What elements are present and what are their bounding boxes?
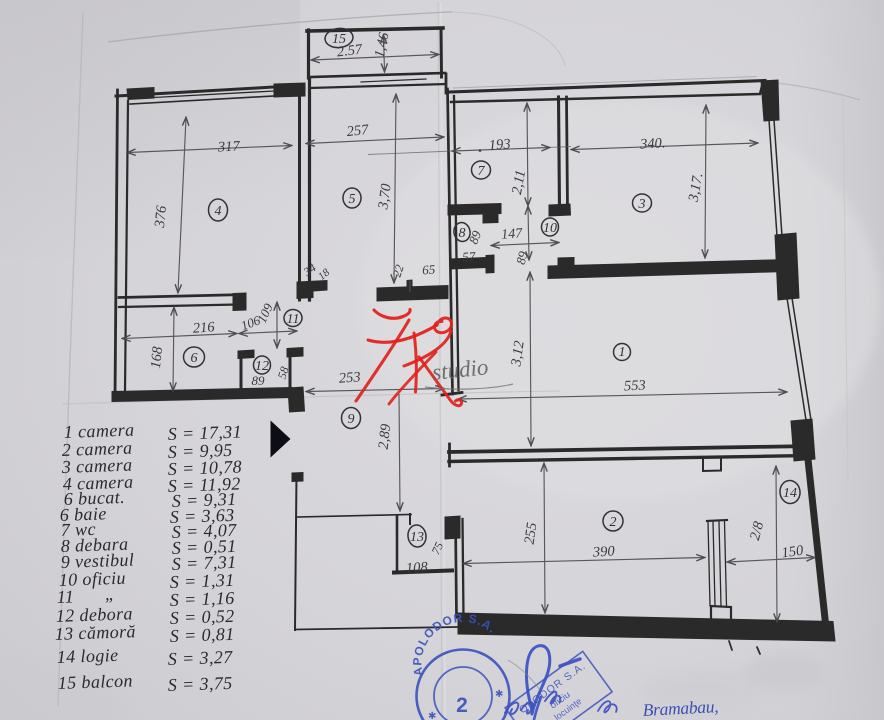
svg-text:257: 257 (346, 122, 370, 140)
svg-text:15 balcon: 15 balcon (57, 670, 133, 693)
svg-text:150: 150 (781, 542, 806, 561)
svg-text:2,89: 2,89 (376, 422, 395, 450)
svg-text:15: 15 (332, 32, 346, 47)
svg-text:57: 57 (462, 249, 476, 265)
svg-text:13 cămoră: 13 cămoră (54, 621, 136, 644)
svg-text:7: 7 (478, 164, 486, 179)
svg-text:14: 14 (783, 486, 797, 501)
svg-text:11: 11 (287, 312, 300, 327)
svg-text:S = 3,27: S = 3,27 (167, 647, 233, 669)
svg-text:8: 8 (459, 226, 466, 241)
svg-text:390: 390 (592, 543, 616, 560)
svg-text:216: 216 (192, 319, 216, 337)
svg-text:5: 5 (349, 192, 356, 207)
svg-text:3: 3 (638, 197, 646, 212)
svg-text:✱: ✱ (428, 711, 436, 720)
svg-text:376: 376 (152, 204, 170, 229)
svg-text:65: 65 (422, 262, 437, 278)
svg-text:2: 2 (610, 515, 617, 530)
svg-text:317: 317 (217, 139, 241, 156)
svg-text:4: 4 (215, 204, 222, 219)
svg-text:11: 11 (56, 586, 74, 607)
svg-text:S = 0,81: S = 0,81 (169, 624, 235, 646)
svg-text:193: 193 (488, 136, 511, 153)
svg-text:14 logie: 14 logie (56, 645, 118, 667)
svg-text:2: 2 (456, 694, 468, 717)
svg-text:340.: 340. (639, 135, 666, 152)
svg-text:9: 9 (348, 412, 355, 427)
svg-text:6: 6 (191, 351, 198, 366)
svg-text:147: 147 (501, 226, 524, 242)
svg-text:Bramabau,: Bramabau, (642, 696, 719, 720)
svg-text:10: 10 (543, 221, 557, 236)
svg-text:13: 13 (410, 530, 424, 545)
svg-text:S = 3,75: S = 3,75 (167, 673, 233, 695)
svg-text:253: 253 (338, 369, 361, 386)
svg-text:168: 168 (148, 345, 166, 369)
svg-text:553: 553 (624, 378, 646, 395)
svg-text:✱: ✱ (495, 689, 503, 700)
svg-text:1: 1 (619, 345, 626, 360)
svg-text:12: 12 (255, 359, 269, 374)
svg-text:108: 108 (406, 559, 429, 576)
svg-text:255: 255 (522, 522, 541, 546)
svg-text:89: 89 (252, 373, 266, 388)
svg-text:„: „ (105, 584, 115, 604)
